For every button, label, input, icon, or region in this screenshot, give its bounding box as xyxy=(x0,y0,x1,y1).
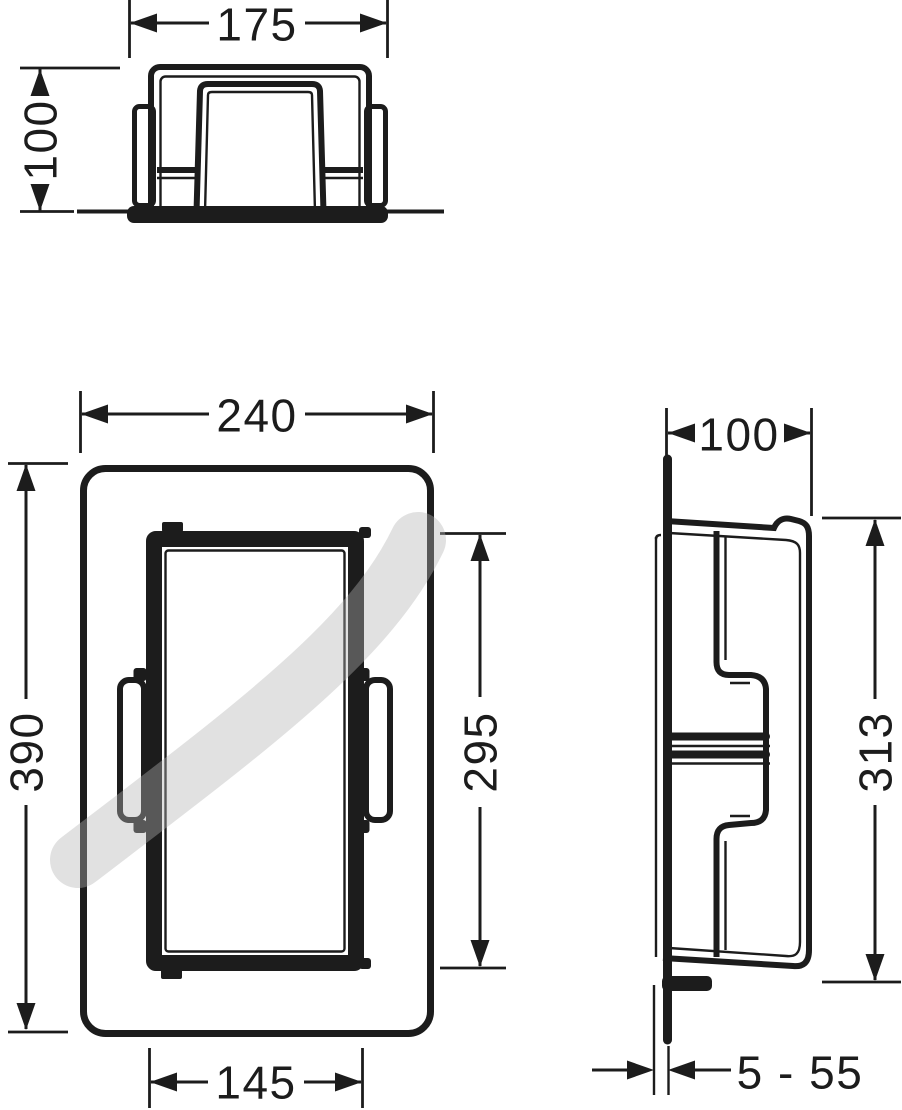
dim-label-390: 390 xyxy=(1,711,53,792)
dim-side-flange-offset: 5 - 55 xyxy=(592,985,863,1099)
dim-label-145: 145 xyxy=(215,1057,296,1109)
dim-front-opening-height: 295 xyxy=(440,534,507,969)
dim-label-295: 295 xyxy=(455,711,507,792)
side-view-body-outline xyxy=(663,518,809,966)
arrowhead-left xyxy=(81,405,108,424)
arrowhead-down xyxy=(31,184,50,211)
arrowhead-left xyxy=(668,424,695,443)
arrowhead-left-pointing xyxy=(668,1061,695,1080)
top-view-flange-bar xyxy=(127,206,388,223)
dim-label-313: 313 xyxy=(850,711,902,792)
dim-label-240: 240 xyxy=(216,390,297,442)
front-view-corner-nub-bottom-right xyxy=(359,958,371,969)
front-view-clip-bump-top xyxy=(162,522,183,532)
side-view: 100 313 5 - 55 xyxy=(592,408,902,1099)
arrowhead-down xyxy=(17,1003,36,1030)
dim-label-100-side: 100 xyxy=(698,409,779,461)
arrowhead-left xyxy=(150,1073,177,1092)
arrowhead-right xyxy=(406,405,433,424)
dim-label-5-55: 5 - 55 xyxy=(737,1047,864,1099)
dim-front-opening-width: 145 xyxy=(150,1048,363,1109)
arrowhead-right-pointing xyxy=(627,1061,654,1080)
front-view-clip-bump-right-upper xyxy=(357,668,370,681)
top-view-recess-outline xyxy=(197,84,324,212)
dim-label-175: 175 xyxy=(216,0,297,51)
dim-label-100: 100 xyxy=(15,99,67,180)
arrowhead-down xyxy=(866,954,885,981)
front-view-corner-nub-top-right xyxy=(359,527,371,538)
arrowhead-up xyxy=(31,69,50,96)
technical-drawing-canvas: 175 100 xyxy=(0,0,902,1110)
arrowhead-down xyxy=(471,940,490,967)
arrowhead-left xyxy=(130,14,157,33)
arrowhead-right xyxy=(335,1073,362,1092)
top-view: 175 100 xyxy=(15,0,444,223)
dim-front-height: 390 xyxy=(1,464,68,1033)
arrowhead-up xyxy=(471,534,490,561)
arrowhead-up xyxy=(866,519,885,546)
dim-top-width: 175 xyxy=(130,0,388,58)
dim-top-depth: 100 xyxy=(15,68,120,212)
dim-front-width: 240 xyxy=(81,390,434,453)
arrowhead-right xyxy=(360,14,387,33)
arrowhead-up xyxy=(17,464,36,491)
front-view-clip-bump-left-upper xyxy=(134,668,147,681)
dim-side-depth: 100 xyxy=(667,408,812,516)
dim-side-body-height: 313 xyxy=(822,518,902,982)
drawing-svg: 175 100 xyxy=(0,0,902,1110)
arrowhead-right xyxy=(784,424,811,443)
front-view-clip-bump-bottom xyxy=(161,969,182,979)
side-view-rim-corner xyxy=(656,535,661,539)
front-view-clip-bump-right-lower xyxy=(357,820,370,833)
